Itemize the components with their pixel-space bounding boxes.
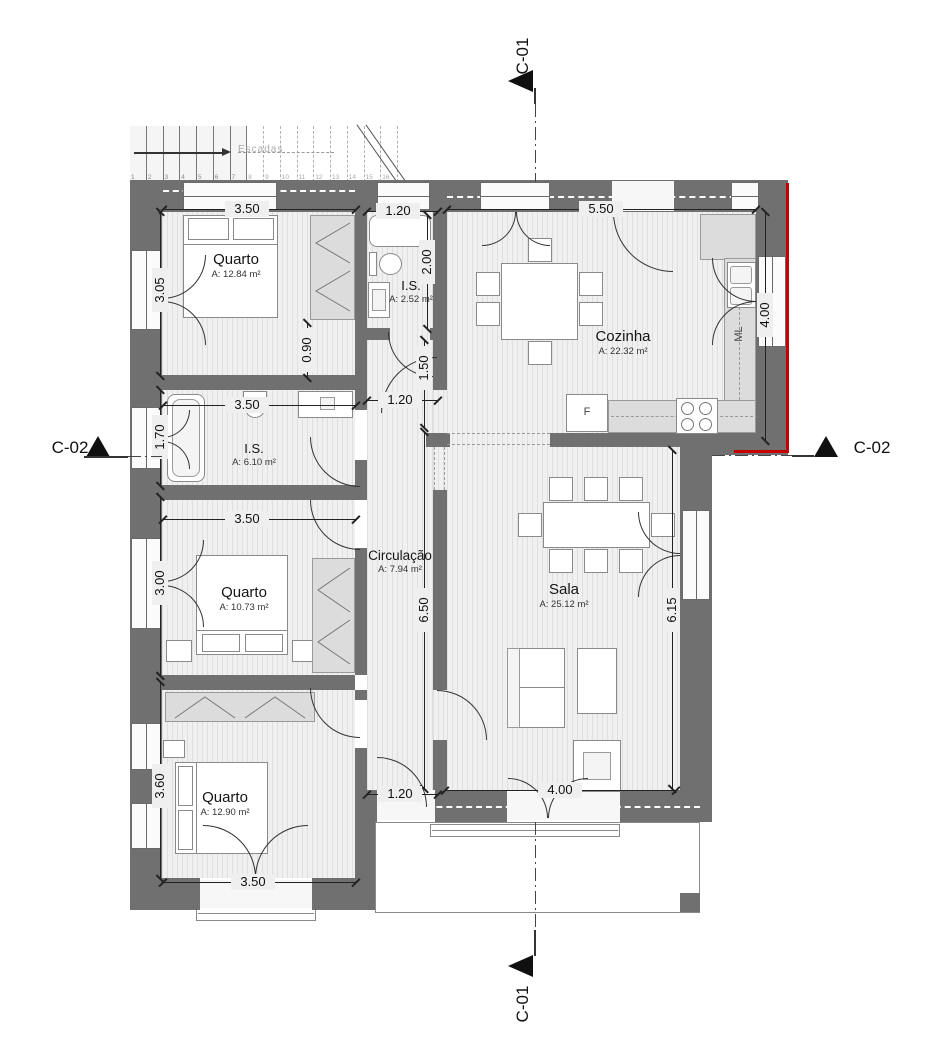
wardrobe-hangers-icon [310,215,355,320]
room-name: Quarto [181,251,291,268]
dim-label: 1.50 [416,346,432,390]
room-area: A: 25.12 m² [509,599,619,610]
room-label-is-large: I.S. A: 6.10 m² [199,441,309,468]
armchair [577,648,617,714]
kitchen-table [501,263,578,340]
chair [476,302,500,326]
sofa-back [507,648,520,728]
window [131,723,161,770]
chair [528,341,552,365]
stair-direction-line [134,152,222,154]
chair [549,549,573,573]
dim-label: 1.20 [378,786,422,802]
section-arrow-icon [86,436,110,457]
room-area: A: 12.90 m² [170,807,280,818]
stair-tread: 13 [331,126,348,182]
stove-burner [681,402,694,415]
dim-label: 3.50 [225,511,269,527]
room-area: A: 2.52 m² [356,294,466,305]
room-label-quarto-3: Quarto A: 12.90 m² [170,789,280,818]
chair [619,477,643,501]
window [480,182,550,210]
opening-dashed [444,447,445,490]
room-name: Sala [509,581,619,598]
nightstand [166,640,192,662]
wall-int [162,485,355,500]
dim-label: 6.50 [416,588,432,632]
dim-label: 1.20 [376,203,420,219]
stair-tread: 4 [180,126,197,182]
kitchen-corner-cabinet [700,214,756,260]
window [731,182,759,210]
section-cut-line [535,104,536,182]
door-threshold-line [432,830,618,831]
chair [584,549,608,573]
stair-tread: 3 [164,126,181,182]
room-label-quarto-1: Quarto A: 12.84 m² [181,251,291,280]
stairs-label: Escadas [238,144,308,155]
dim-label: 5.50 [579,201,623,217]
room-name: Cozinha [568,328,678,345]
section-cut-line [535,822,536,932]
room-area: A: 10.73 m² [189,602,299,613]
room-label-sala: Sala A: 25.12 m² [509,581,619,610]
chair [549,477,573,501]
toilet-bowl [379,253,402,275]
dim-label: 3.50 [225,397,269,413]
room-name: I.S. [356,278,466,293]
stair-tread: 1 [130,126,147,182]
door-threshold-line [198,913,314,914]
basin-bowl [320,397,335,410]
room-name: Quarto [170,789,280,806]
stair-arrow-icon [222,148,231,156]
dim-label: 3.05 [152,268,168,312]
floor-plan: 12345678910111213141516 Escadas [0,0,931,1059]
section-cut-line [128,456,162,457]
room-label-cozinha: Cozinha A: 22.32 m² [568,328,678,357]
opening-dashed [447,433,550,434]
opening-dashed [447,444,550,445]
fridge-label: F [578,406,596,418]
room-label-quarto-2: Quarto A: 10.73 m² [189,584,299,613]
terrace-column [680,893,700,912]
sala-table [543,502,650,548]
pillow [202,634,240,652]
dim-label: 4.00 [757,293,773,337]
section-cut-highlight [734,450,789,453]
room-area: A: 22.32 m² [568,346,678,357]
stair-tread: 5 [197,126,214,182]
dim-label: 3.60 [152,764,168,808]
door-opening [682,510,710,600]
wall-kitchen-sala [550,433,680,447]
wardrobe-hangers-icon [165,692,315,722]
chair [619,549,643,573]
wardrobe-hangers-icon [312,558,355,673]
dim-label: 6.15 [664,588,680,632]
toilet-tank [369,252,377,276]
chair [476,272,500,296]
section-line [534,930,536,956]
sofa-cushion-line [520,687,564,688]
dim-label: 3.50 [231,874,275,890]
wall-int [355,328,390,340]
chair [518,513,542,537]
tv [583,752,611,780]
dim-label: 1.70 [152,415,168,459]
section-line [84,456,128,458]
wall-int [433,490,447,690]
opening-dashed [434,447,435,490]
room-area: A: 6.10 m² [199,457,309,468]
dim-label: 0.90 [299,328,315,372]
bed-line [184,244,277,245]
section-cut-highlight [786,183,789,453]
stove-burner [699,418,712,431]
wall-int [355,748,367,822]
section-arrow-icon [508,70,533,92]
pillow [245,634,283,652]
pillow [233,218,274,240]
wall-right [680,447,712,822]
stair-tread: 14 [348,126,365,182]
section-label-c02-right: C-02 [842,438,902,456]
room-name: Circulação [345,548,455,563]
room-name: I.S. [199,441,309,456]
room-label-circulacao: Circulação A: 7.94 m² [345,548,455,575]
wall-int [162,375,355,390]
section-arrow-icon [814,436,838,457]
room-area: A: 12.84 m² [181,269,291,280]
dim-label: 4.00 [538,782,582,798]
chair [579,302,603,326]
stair-tread: 2 [147,126,164,182]
section-label-c01-bottom: C-01 [513,974,531,1034]
dim-label: 1.20 [378,392,422,408]
pillow [188,218,229,240]
room-label-is-small: I.S. A: 2.52 m² [356,278,466,305]
stairs: 12345678910111213141516 Escadas [130,126,398,182]
section-line [792,455,814,457]
chair [579,272,603,296]
chair [584,477,608,501]
window [131,803,161,849]
dim-label: 3.00 [152,561,168,605]
section-line [534,88,536,104]
stove-burner [681,418,694,431]
nightstand [163,740,185,758]
room-name: Quarto [189,584,299,601]
wall-step [355,822,375,878]
stair-tread: 12 [314,126,331,182]
room-area: A: 7.94 m² [345,564,455,575]
stove-burner [699,402,712,415]
bed-line [197,630,287,631]
dim-label: 3.50 [225,201,269,217]
wall-int [433,740,447,790]
